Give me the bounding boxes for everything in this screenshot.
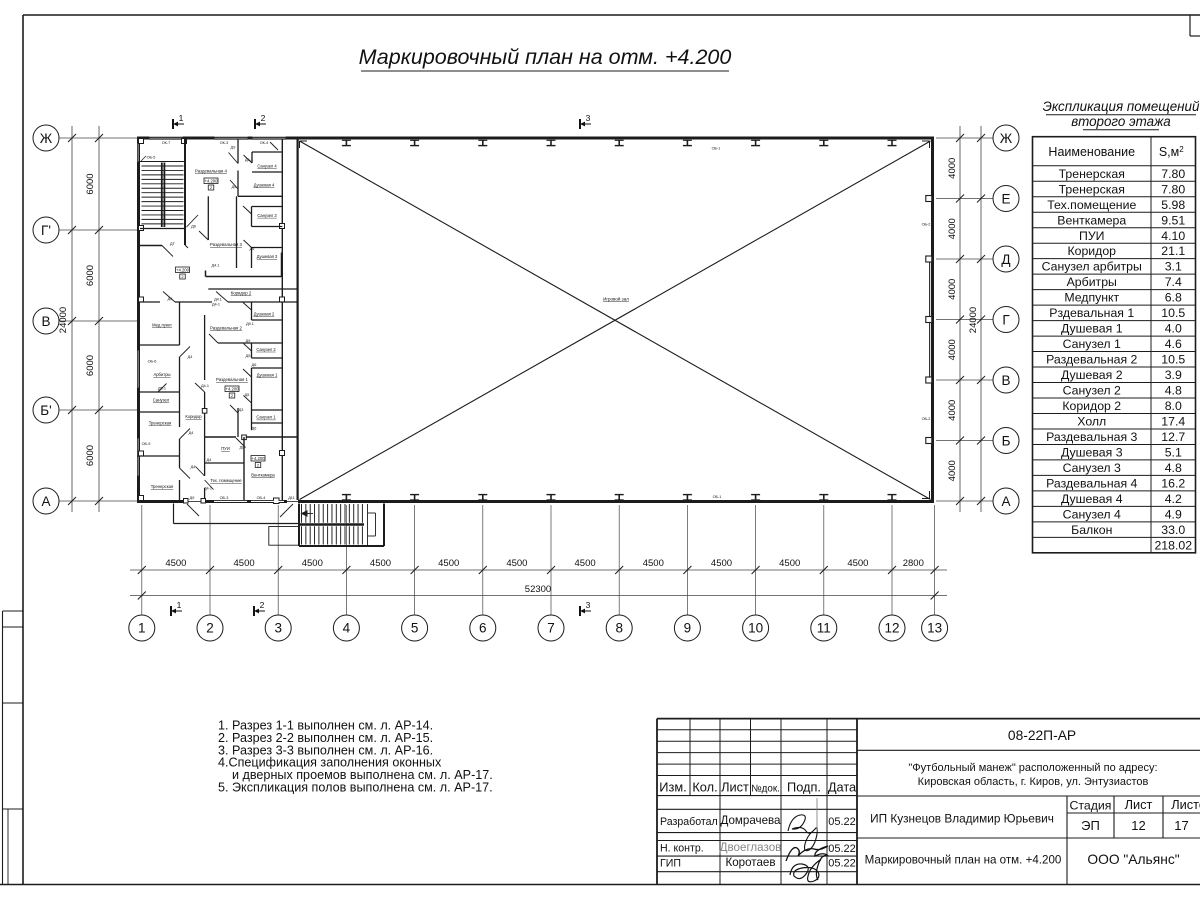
svg-text:5.98: 5.98	[1161, 198, 1185, 212]
svg-text:Душевая 2: Душевая 2	[254, 311, 275, 316]
svg-text:Тех. помещение: Тех. помещение	[210, 478, 242, 483]
svg-text:9.51: 9.51	[1161, 213, 1185, 227]
svg-text:Д4: Д4	[168, 297, 173, 301]
svg-text:Кировская область, г. Киров, у: Кировская область, г. Киров, ул. Энтузиа…	[918, 776, 1149, 788]
svg-text:9: 9	[684, 621, 692, 636]
svg-text:Венткамера: Венткамера	[251, 473, 275, 478]
svg-text:ОБ-4: ОБ-4	[257, 496, 266, 500]
svg-text:ИП Кузнецов Владимир Юрьевич: ИП Кузнецов Владимир Юрьевич	[870, 812, 1054, 826]
svg-text:ОБ-5: ОБ-5	[147, 156, 156, 160]
svg-text:Ж: Ж	[1000, 131, 1013, 146]
svg-text:Маркировочный план на отм. +4.: Маркировочный план на отм. +4.200	[865, 854, 1062, 867]
svg-text:Д4: Д4	[207, 458, 212, 462]
svg-text:1: 1	[177, 600, 182, 610]
svg-text:Душевая 1: Душевая 1	[257, 373, 278, 378]
svg-text:4500: 4500	[370, 558, 391, 569]
svg-text:ОБ-1: ОБ-1	[712, 147, 721, 151]
svg-text:Арбитры: Арбитры	[1067, 275, 1117, 289]
svg-text:Д9: Д9	[190, 496, 195, 500]
svg-text:Маркировочный план на отм. +4.: Маркировочный план на отм. +4.200	[359, 45, 732, 69]
svg-text:ОБ-2: ОБ-2	[922, 223, 931, 227]
svg-text:6.8: 6.8	[1165, 291, 1182, 305]
svg-text:7.4: 7.4	[1165, 275, 1182, 289]
svg-text:Санузел 4: Санузел 4	[1063, 507, 1121, 521]
svg-text:4500: 4500	[438, 558, 459, 569]
svg-text:Санузел арбитры: Санузел арбитры	[1042, 260, 1142, 274]
svg-text:Рздевальная 1: Рздевальная 1	[1049, 306, 1134, 320]
svg-text:Тренерская: Тренерская	[149, 421, 172, 426]
svg-text:21.1: 21.1	[1161, 244, 1185, 258]
svg-text:Холл: Холл	[1077, 415, 1106, 429]
svg-text:Арбитры: Арбитры	[153, 372, 170, 377]
svg-text:Венткамера: Венткамера	[1057, 213, 1126, 227]
svg-text:Д9: Д9	[232, 185, 237, 189]
svg-text:Д9: Д9	[246, 339, 251, 343]
svg-text:12: 12	[884, 621, 899, 636]
svg-text:+4.200: +4.200	[252, 456, 266, 461]
svg-text:10.5: 10.5	[1161, 306, 1185, 320]
svg-text:4000: 4000	[947, 158, 958, 179]
svg-text:5. Экспликация полов выполнена: 5. Экспликация полов выполнена см. л. АР…	[218, 781, 493, 795]
svg-text:ОК-4: ОК-4	[260, 141, 269, 145]
svg-text:12: 12	[1131, 818, 1145, 833]
svg-text:Душевая 2: Душевая 2	[1061, 368, 1123, 382]
svg-text:Коридор: Коридор	[1067, 244, 1116, 258]
svg-text:8: 8	[615, 621, 623, 636]
svg-text:11: 11	[817, 621, 831, 636]
svg-text:ОБ-2: ОБ-2	[922, 417, 931, 421]
svg-text:3: 3	[586, 113, 591, 123]
svg-text:Д11: Д11	[288, 496, 295, 500]
svg-text:"Футбольный манеж" расположенн: "Футбольный манеж" расположенный по адре…	[908, 762, 1157, 774]
svg-text:Тренерская: Тренерская	[1059, 182, 1125, 196]
svg-text:Д4-1: Д4-1	[212, 303, 220, 307]
svg-text:52300: 52300	[525, 584, 551, 595]
svg-text:ДТ: ДТ	[170, 242, 176, 246]
svg-text:4.9: 4.9	[1165, 507, 1182, 521]
svg-text:05.22: 05.22	[828, 816, 856, 828]
svg-text:7.80: 7.80	[1161, 167, 1185, 181]
svg-text:4000: 4000	[947, 279, 958, 300]
svg-text:ОБ-3: ОБ-3	[220, 496, 229, 500]
svg-text:17: 17	[1174, 818, 1188, 833]
svg-text:Тренерская: Тренерская	[151, 484, 174, 489]
svg-text:Наименование: Наименование	[1048, 145, 1135, 159]
svg-text:+4.200: +4.200	[205, 179, 219, 184]
svg-text:В: В	[1001, 373, 1010, 388]
svg-text:Дата: Дата	[828, 780, 857, 795]
svg-text:7.80: 7.80	[1161, 182, 1185, 196]
svg-text:24000: 24000	[58, 307, 69, 333]
svg-text:17.4: 17.4	[1161, 415, 1185, 429]
svg-text:Санузел: Санузел	[153, 398, 170, 403]
svg-text:24000: 24000	[968, 307, 979, 333]
svg-text:4500: 4500	[779, 558, 800, 569]
svg-text:Б': Б'	[40, 403, 51, 418]
svg-text:Д4.1: Д4.1	[214, 297, 222, 301]
svg-text:Тренерская: Тренерская	[1059, 167, 1125, 181]
svg-text:Раздевальная 3: Раздевальная 3	[210, 242, 242, 247]
svg-text:1: 1	[138, 621, 146, 636]
svg-text:12.7: 12.7	[1161, 430, 1185, 444]
svg-text:Санузел 1: Санузел 1	[1063, 337, 1121, 351]
svg-text:Д4-1: Д4-1	[201, 384, 209, 388]
svg-text:Кол.: Кол.	[692, 780, 717, 795]
svg-text:ОБ-9: ОБ-9	[142, 442, 151, 446]
svg-text:Разработал: Разработал	[660, 816, 718, 828]
svg-text:Коридор: Коридор	[185, 414, 202, 419]
svg-text:А: А	[41, 494, 50, 509]
svg-text:ООО "Альянс": ООО "Альянс"	[1087, 852, 1179, 867]
svg-text:5: 5	[411, 621, 419, 636]
svg-text:Тех.помещение: Тех.помещение	[1047, 198, 1136, 212]
svg-text:4.6: 4.6	[1165, 337, 1182, 351]
svg-text:4000: 4000	[947, 460, 958, 481]
svg-text:4500: 4500	[302, 558, 323, 569]
svg-text:4500: 4500	[575, 558, 596, 569]
svg-text:Д6: Д6	[250, 247, 255, 251]
svg-text:+4.200: +4.200	[226, 387, 240, 392]
svg-text:4.8: 4.8	[1165, 384, 1182, 398]
svg-text:Душевая 1: Душевая 1	[1061, 322, 1123, 336]
svg-text:Раздевальная 4: Раздевальная 4	[1046, 476, 1137, 490]
svg-text:6000: 6000	[85, 265, 96, 286]
svg-text:Ж: Ж	[40, 131, 53, 146]
svg-text:Д6: Д6	[252, 427, 257, 431]
svg-text:6: 6	[479, 621, 487, 636]
svg-text:Д3: Д3	[239, 408, 244, 412]
svg-text:Е: Е	[1001, 192, 1010, 207]
svg-text:Д: Д	[1001, 252, 1010, 267]
svg-text:3.1: 3.1	[1165, 260, 1182, 274]
svg-text:Санузел 2: Санузел 2	[256, 347, 276, 352]
svg-text:Санузел 4: Санузел 4	[257, 164, 277, 169]
svg-text:ГИП: ГИП	[660, 858, 681, 870]
svg-text:Д5: Д5	[246, 354, 251, 358]
svg-text:Экспликация помещений: Экспликация помещений	[1043, 99, 1200, 114]
svg-text:4500: 4500	[165, 558, 186, 569]
svg-text:8.0: 8.0	[1165, 399, 1182, 413]
svg-text:16.2: 16.2	[1161, 476, 1185, 490]
svg-text:7: 7	[547, 621, 555, 636]
svg-text:4.2: 4.2	[1165, 492, 1182, 506]
svg-text:2: 2	[206, 621, 214, 636]
svg-text:6000: 6000	[85, 355, 96, 376]
svg-text:4.8: 4.8	[1165, 461, 1182, 475]
svg-text:Лист: Лист	[1125, 797, 1153, 812]
svg-text:13: 13	[927, 621, 942, 636]
svg-text:Санузел 3: Санузел 3	[1063, 461, 1121, 475]
svg-text:Игровой зал: Игровой зал	[603, 296, 629, 302]
svg-text:Медпункт: Медпункт	[1064, 291, 1119, 305]
svg-text:Мед пункт: Мед пункт	[152, 323, 172, 328]
svg-text:4.0: 4.0	[1165, 322, 1182, 336]
svg-text:Коротаев: Коротаев	[725, 856, 775, 869]
svg-text:6000: 6000	[85, 445, 96, 466]
svg-text:Д4: Д4	[189, 431, 194, 435]
svg-text:ОК-7: ОК-7	[162, 141, 171, 145]
svg-text:Д4.1: Д4.1	[212, 264, 220, 268]
svg-text:ОБ-1: ОБ-1	[713, 495, 722, 499]
svg-text:Листов: Листов	[1171, 797, 1200, 812]
svg-text:Д9-1: Д9-1	[245, 158, 253, 162]
svg-text:Двоеглазов: Двоеглазов	[720, 841, 782, 854]
svg-text:Д6: Д6	[191, 225, 196, 229]
svg-text:4: 4	[343, 621, 351, 636]
svg-text:6000: 6000	[85, 173, 96, 194]
svg-text:Н. контр.: Н. контр.	[660, 843, 704, 855]
svg-text:Раздевальная 2: Раздевальная 2	[210, 326, 242, 331]
svg-text:4000: 4000	[947, 339, 958, 360]
svg-text:Санузел 3: Санузел 3	[257, 213, 277, 218]
svg-text:05.22: 05.22	[828, 858, 856, 870]
svg-text:Б: Б	[1002, 434, 1011, 449]
svg-text:Г': Г'	[41, 223, 51, 238]
svg-text:3.9: 3.9	[1165, 368, 1182, 382]
svg-text:ПУИ: ПУИ	[221, 446, 230, 451]
svg-text:2800: 2800	[903, 558, 924, 569]
svg-text:Коридор 2: Коридор 2	[231, 290, 252, 295]
svg-text:33.0: 33.0	[1161, 523, 1185, 537]
svg-text:5.1: 5.1	[1165, 445, 1182, 459]
svg-text:Раздевальная 4: Раздевальная 4	[195, 169, 227, 174]
svg-text:ОК-3: ОК-3	[220, 141, 229, 145]
svg-text:Раздевальная 3: Раздевальная 3	[1046, 430, 1137, 444]
svg-text:10: 10	[748, 621, 763, 636]
svg-text:Домрачева: Домрачева	[720, 814, 781, 827]
svg-text:Стадия: Стадия	[1070, 799, 1112, 813]
svg-text:4500: 4500	[643, 558, 664, 569]
svg-text:второго этажа: второго этажа	[1071, 114, 1171, 129]
svg-text:+4.200: +4.200	[176, 268, 190, 273]
svg-text:Д5: Д5	[245, 393, 250, 397]
svg-text:2: 2	[261, 113, 266, 123]
svg-text:4500: 4500	[711, 558, 732, 569]
svg-text:Подп.: Подп.	[787, 780, 821, 795]
svg-text:Д4: Д4	[188, 355, 193, 359]
svg-text:Коридор 2: Коридор 2	[1062, 399, 1121, 413]
svg-text:№док.: №док.	[751, 784, 780, 795]
svg-text:Д9: Д9	[231, 146, 236, 150]
svg-text:08-22П-АР: 08-22П-АР	[1008, 728, 1076, 743]
svg-text:4.10: 4.10	[1161, 229, 1185, 243]
svg-text:Санузел 1: Санузел 1	[256, 415, 276, 420]
svg-text:Балкон: Балкон	[1071, 523, 1112, 537]
svg-text:Душевая 4: Душевая 4	[254, 183, 275, 188]
svg-text:ЭП: ЭП	[1081, 818, 1100, 833]
svg-text:3: 3	[586, 600, 591, 610]
svg-text:Раздевальная 2: Раздевальная 2	[1046, 353, 1137, 367]
svg-text:ОБ-6: ОБ-6	[148, 360, 157, 364]
svg-text:Душевая 4: Душевая 4	[1061, 492, 1123, 506]
svg-text:Д6: Д6	[252, 363, 257, 367]
svg-text:3: 3	[274, 621, 282, 636]
svg-text:Д5-1: Д5-1	[158, 386, 166, 390]
svg-text:Санузел 2: Санузел 2	[1063, 384, 1121, 398]
svg-text:Д4: Д4	[191, 465, 196, 469]
svg-text:4000: 4000	[947, 218, 958, 239]
svg-text:Изм.: Изм.	[659, 780, 686, 795]
svg-text:Душевая 3: Душевая 3	[1061, 445, 1123, 459]
svg-text:ПУИ: ПУИ	[1079, 229, 1105, 243]
svg-text:Лист: Лист	[721, 780, 749, 795]
svg-text:Раздевальная 1: Раздевальная 1	[216, 377, 248, 382]
svg-text:10.5: 10.5	[1161, 353, 1185, 367]
svg-text:1: 1	[179, 113, 184, 123]
svg-text:Д4-1: Д4-1	[204, 487, 212, 491]
svg-text:4000: 4000	[947, 400, 958, 421]
svg-text:4500: 4500	[506, 558, 527, 569]
svg-text:218.02: 218.02	[1154, 538, 1192, 552]
svg-text:4500: 4500	[847, 558, 868, 569]
svg-text:05.22: 05.22	[828, 843, 856, 855]
svg-text:Г: Г	[1002, 313, 1010, 328]
svg-text:В: В	[41, 314, 50, 329]
svg-text:Душевая 3: Душевая 3	[257, 254, 278, 259]
svg-text:4500: 4500	[234, 558, 255, 569]
svg-text:Д9.1: Д9.1	[246, 322, 254, 326]
svg-text:2: 2	[260, 600, 265, 610]
svg-text:А: А	[1001, 494, 1010, 509]
